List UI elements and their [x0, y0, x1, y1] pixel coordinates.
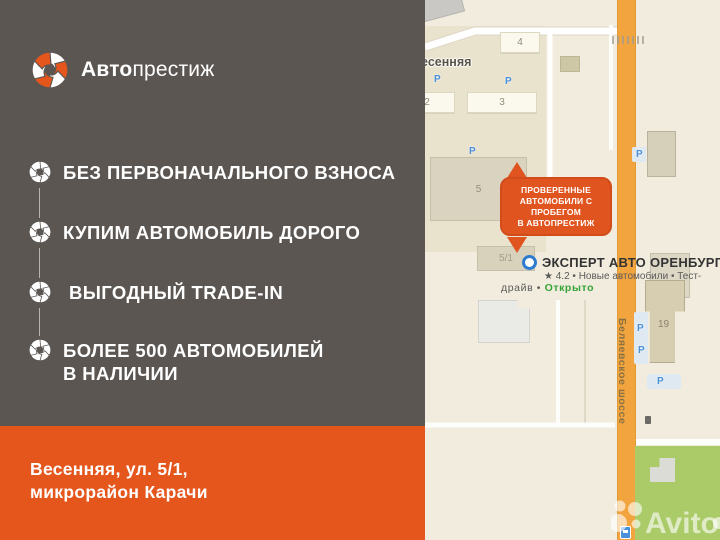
map-poi-icon	[645, 416, 651, 424]
address-line2: микрорайон Карачи	[30, 481, 208, 504]
poi-rating-line: ★ 4.2 • Новые автомобили • Тест-	[544, 271, 701, 282]
brand-name: Автопрестиж	[81, 58, 214, 82]
road-dash	[622, 36, 624, 44]
swirl-bullet-icon	[28, 280, 52, 309]
parking-icon: P	[638, 345, 645, 356]
benefit-label: БЕЗ ПЕРВОНАЧАЛЬНОГО ВЗНОСА	[63, 160, 395, 184]
benefit-label: ВЫГОДНЫЙ TRADE-IN	[63, 280, 283, 304]
road-name-label: Беляевское шоссе	[616, 318, 628, 425]
address-line1: Весенняя, ул. 5/1,	[30, 458, 208, 481]
bullet-connector-line	[39, 248, 40, 278]
poi-title: ЭКСПЕРТ АВТО ОРЕНБУРГ	[542, 255, 720, 270]
map-main-road	[617, 0, 636, 540]
bullet-connector-line	[39, 308, 40, 336]
road-dash	[632, 36, 634, 44]
parking-area	[647, 374, 681, 389]
avito-watermark: Avito	[611, 496, 720, 540]
building-number: 5	[476, 184, 482, 195]
location-map: 4 2 3 5 5/1 19 P P P P P P P Весенняя Бе…	[425, 0, 720, 540]
benefit-label: БОЛЕЕ 500 АВТОМОБИЛЕЙ	[63, 339, 324, 362]
parking-icon: P	[434, 74, 441, 85]
watermark-text: Avito	[645, 507, 719, 540]
parking-icon: P	[637, 323, 644, 334]
callout-line1: ПРОВЕРЕННЫЕ	[502, 185, 610, 196]
bullet-connector-line	[39, 188, 40, 218]
road-dash	[612, 36, 614, 44]
building-number: 2	[425, 97, 430, 108]
brand-name-light: престиж	[132, 58, 214, 81]
benefit-item-2: КУПИМ АВТОМОБИЛЬ ДОРОГО	[28, 220, 360, 249]
road-dash	[617, 36, 619, 44]
road-dash	[627, 36, 629, 44]
callout-pointer-up	[507, 162, 527, 178]
swirl-bullet-icon	[28, 160, 52, 189]
swirl-bullet-icon	[28, 338, 52, 367]
swirl-bullet-icon	[28, 220, 52, 249]
parking-icon: P	[505, 76, 512, 87]
poi-open-status: Открыто	[545, 282, 595, 294]
map-building-4: 4	[500, 32, 540, 53]
building-number: 19	[658, 319, 669, 330]
benefit-item-1: БЕЗ ПЕРВОНАЧАЛЬНОГО ВЗНОСА	[28, 160, 395, 189]
benefit-item-3: ВЫГОДНЫЙ TRADE-IN	[28, 280, 283, 309]
callout-line2: АВТОМОБИЛИ С ПРОБЕГОМ	[502, 196, 610, 218]
info-panel: Автопрестиж БЕЗ ПЕРВОНАЧАЛЬНОГО ВЗНОСА	[0, 0, 425, 426]
callout-pointer-down	[507, 237, 527, 253]
poi-ring-marker-icon	[522, 255, 537, 270]
benefit-label: КУПИМ АВТОМОБИЛЬ ДОРОГО	[63, 220, 360, 244]
benefit-item-4: БОЛЕЕ 500 АВТОМОБИЛЕЙ В НАЛИЧИИ	[28, 338, 324, 385]
map-building	[647, 131, 676, 177]
parking-area	[634, 312, 648, 364]
brand-name-bold: Авто	[81, 58, 132, 81]
road-dash	[642, 36, 644, 44]
building-number: 3	[499, 97, 505, 108]
poi-status-prefix: драйв •	[501, 282, 545, 294]
brand-logo: Автопрестиж	[30, 50, 214, 90]
road-dash	[637, 36, 639, 44]
parking-icon: P	[636, 149, 643, 160]
building-number: 4	[517, 37, 523, 48]
street-label: Весенняя	[425, 55, 471, 69]
parking-icon: P	[657, 376, 664, 387]
benefit-label-line2: В НАЛИЧИИ	[63, 362, 324, 385]
map-building	[560, 56, 580, 72]
map-building-2: 2	[425, 92, 455, 113]
parking-icon: P	[469, 146, 476, 157]
building-number: 5/1	[499, 253, 513, 264]
poi-status-line: драйв • Открыто	[501, 282, 594, 294]
callout-line3: В АВТОПРЕСТИЖ	[502, 218, 610, 229]
swirl-logo-icon	[30, 50, 70, 90]
ad-image: Автопрестиж БЕЗ ПЕРВОНАЧАЛЬНОГО ВЗНОСА	[0, 0, 720, 540]
map-building-3: 3	[467, 92, 537, 113]
address-footer: Весенняя, ул. 5/1, микрорайон Карачи	[0, 426, 425, 540]
map-callout: ПРОВЕРЕННЫЕ АВТОМОБИЛИ С ПРОБЕГОМ В АВТО…	[500, 162, 612, 253]
